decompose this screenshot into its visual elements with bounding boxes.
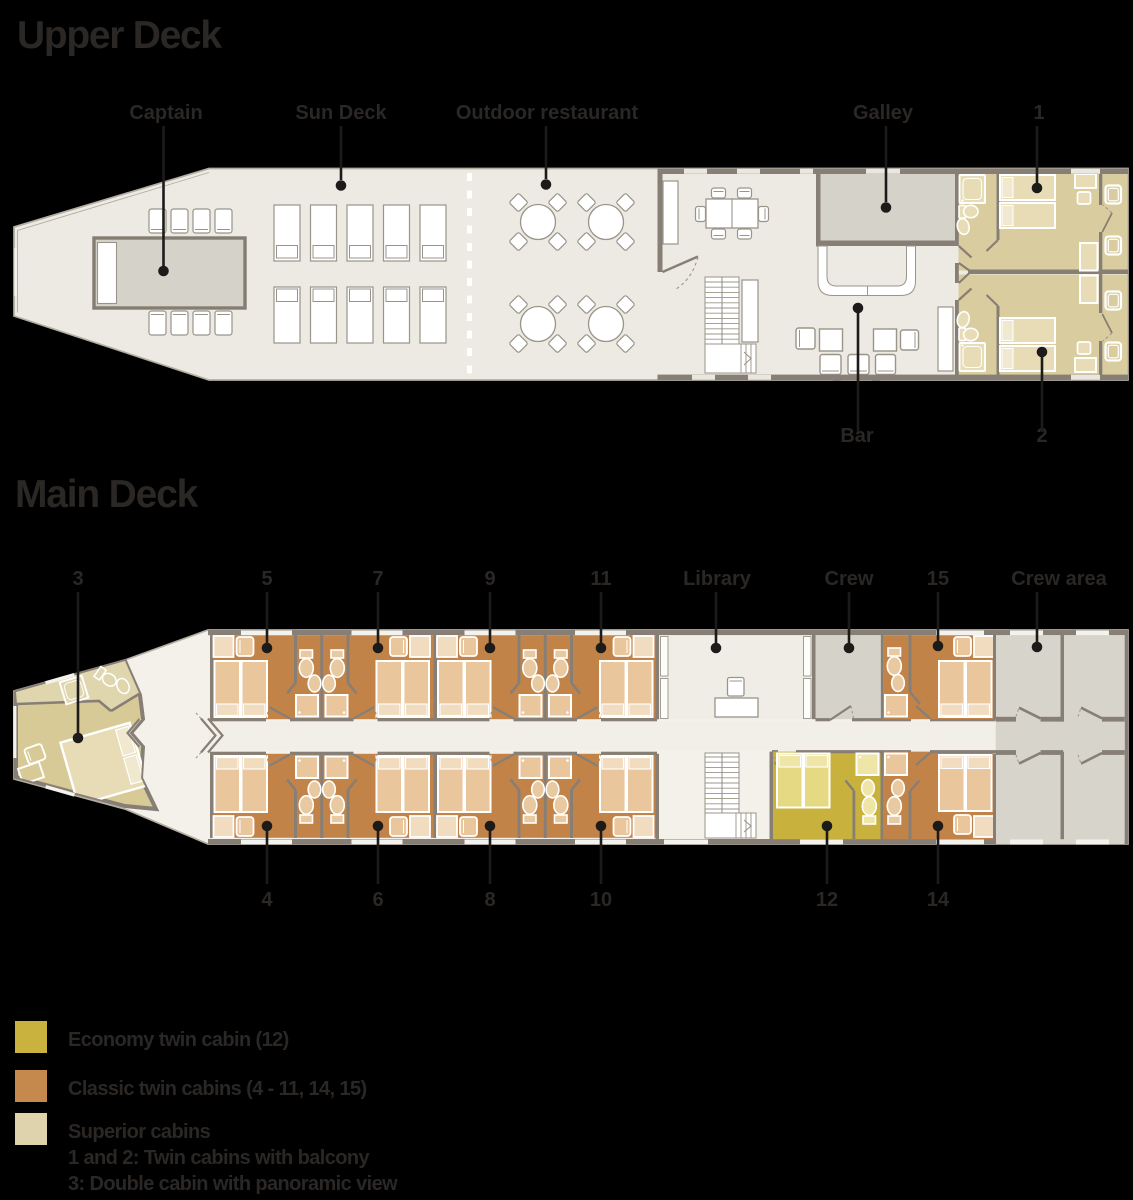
svg-text:Economy twin cabin (12): Economy twin cabin (12) [68, 1029, 289, 1051]
svg-text:6: 6 [372, 889, 383, 911]
svg-text:Sun Deck: Sun Deck [295, 102, 387, 124]
svg-text:14: 14 [927, 889, 950, 911]
svg-text:15: 15 [927, 568, 949, 590]
svg-text:Captain: Captain [129, 102, 202, 124]
svg-text:1: 1 [1033, 102, 1044, 124]
svg-text:Outdoor restaurant: Outdoor restaurant [456, 102, 639, 124]
svg-text:1 and 2: Twin cabins with balc: 1 and 2: Twin cabins with balcony [68, 1147, 370, 1169]
svg-text:Superior cabins: Superior cabins [68, 1121, 211, 1143]
svg-text:9: 9 [484, 568, 495, 590]
svg-text:Main Deck: Main Deck [15, 473, 199, 516]
svg-text:4: 4 [261, 889, 273, 911]
svg-text:3: Double cabin with panoramic: 3: Double cabin with panoramic view [68, 1173, 398, 1195]
svg-text:5: 5 [261, 568, 272, 590]
svg-text:Crew area: Crew area [1011, 568, 1107, 590]
svg-text:Library: Library [683, 568, 752, 590]
svg-text:11: 11 [590, 568, 611, 590]
svg-text:12: 12 [816, 889, 838, 911]
svg-text:Crew: Crew [825, 568, 874, 590]
svg-text:10: 10 [590, 889, 612, 911]
svg-text:Galley: Galley [853, 102, 914, 124]
svg-text:Classic twin cabins (4 - 11, 1: Classic twin cabins (4 - 11, 14, 15) [68, 1078, 367, 1100]
svg-text:8: 8 [484, 889, 495, 911]
svg-text:Upper Deck: Upper Deck [17, 14, 222, 57]
svg-text:7: 7 [372, 568, 383, 590]
svg-text:3: 3 [72, 568, 83, 590]
